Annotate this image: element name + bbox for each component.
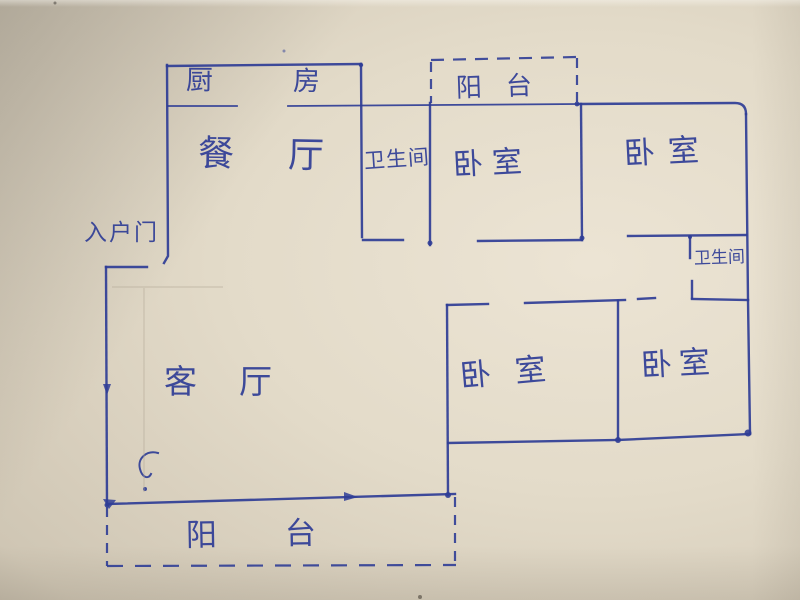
room-label-bathroom-right: 卫生间 (694, 249, 746, 268)
paper-background: 厨房 餐厅 阳台 卫生间 卧室 卧室 卫生间 入户门 客厅 卧室 卧室 阳台 (0, 0, 800, 600)
room-label-bedroom-top-right: 卧室 (623, 135, 713, 171)
room-label-bedroom-top-middle: 卧室 (452, 147, 531, 181)
floor-plan-walls (106, 64, 750, 505)
room-label-bathroom-top: 卫生间 (363, 147, 430, 173)
room-label-entrance-door: 入户门 (84, 222, 159, 245)
floor-plan-drawing (0, 0, 800, 600)
room-label-living: 客厅 (164, 365, 314, 398)
door-swing-mark (139, 452, 158, 491)
balcony-dashed-outlines (107, 57, 577, 566)
room-label-dining: 餐厅 (198, 136, 379, 175)
pen-arrow-marks (103, 384, 358, 509)
room-label-balcony-bottom: 阳台 (186, 517, 385, 551)
ink-joint-blobs (105, 63, 752, 508)
room-label-bedroom-bottom-right: 卧室 (640, 347, 718, 382)
room-label-kitchen: 厨房 (186, 67, 400, 96)
room-label-balcony-top: 阳台 (456, 72, 557, 101)
